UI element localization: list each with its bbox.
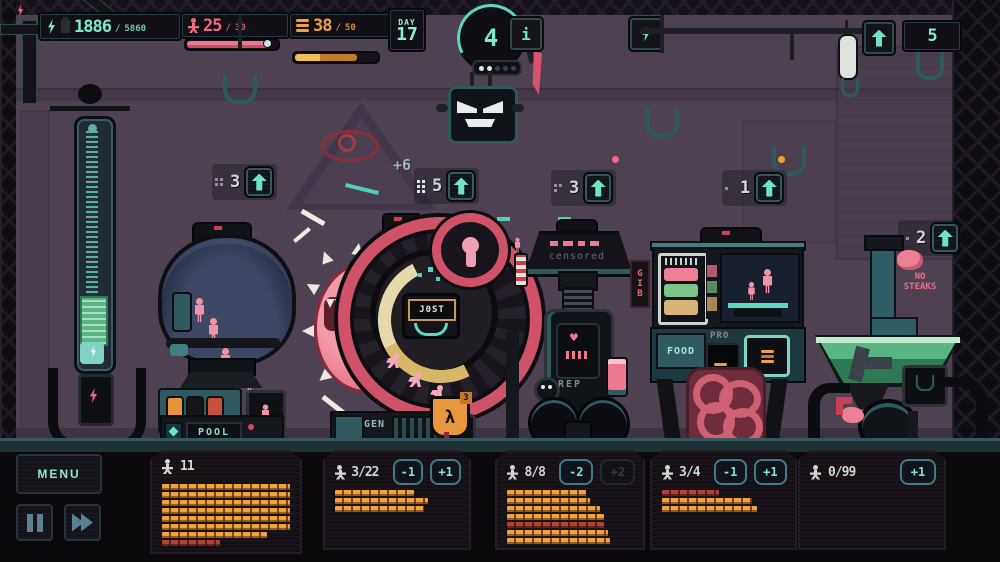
burger-icon xyxy=(761,350,774,363)
food-column xyxy=(706,253,718,319)
fast-forward-button[interactable] xyxy=(62,502,103,543)
small-wheel-creature-body xyxy=(466,251,476,267)
robot-eye-left xyxy=(457,101,477,113)
food-lid-light xyxy=(722,231,730,235)
unit-progress-bars xyxy=(162,484,290,546)
unit-panel-grinder: 0/99 +1 xyxy=(798,450,946,550)
food-counter: 38 / 50 xyxy=(288,12,396,39)
robot-eye-right xyxy=(483,101,503,113)
rep-label: REP xyxy=(558,379,582,390)
gauge-base-box xyxy=(78,374,114,426)
food-meter xyxy=(292,51,380,64)
door-grill xyxy=(665,258,697,265)
claw-icon xyxy=(645,108,679,138)
hook-counter[interactable]: 5 xyxy=(902,20,962,52)
day-counter: DAY 17 xyxy=(388,8,426,52)
wheel-runner xyxy=(386,353,399,368)
heart-icon: ♥ xyxy=(570,331,578,346)
hook-icon xyxy=(916,52,944,80)
unit-panel-header: 11 xyxy=(162,459,292,474)
grinder-pipe-cap xyxy=(864,235,904,251)
food-layer-green xyxy=(664,284,698,297)
upgrade-button-rep[interactable] xyxy=(583,172,613,204)
separator: / xyxy=(115,24,120,34)
fast-forward-icon xyxy=(72,514,93,532)
remove-unit-button[interactable]: -2 xyxy=(559,459,594,485)
climbing-person xyxy=(514,238,521,252)
rep-dome-lights xyxy=(550,241,599,246)
pool-skirt xyxy=(180,372,262,388)
pool-red-light xyxy=(248,424,254,430)
upgrade-button-pool[interactable] xyxy=(244,166,274,198)
gen-cap-light xyxy=(394,217,402,221)
cost-pips xyxy=(554,184,565,192)
robot-grin xyxy=(465,119,495,127)
upgrade-cost: 1 xyxy=(740,178,750,198)
unit-panel-header: 3/4 -1 +1 xyxy=(662,459,787,485)
person-icon xyxy=(810,465,821,480)
remove-unit-button[interactable]: -1 xyxy=(393,459,424,485)
unit-count: 8/8 xyxy=(524,465,544,480)
pool-worker xyxy=(170,344,188,356)
food-person xyxy=(747,282,755,300)
robot-antenna xyxy=(470,72,474,86)
rep-meter xyxy=(566,351,590,359)
add-unit-button[interactable]: +1 xyxy=(430,459,461,485)
gen-machine[interactable]: J0ST GEN xyxy=(290,185,530,450)
unit-progress-bars xyxy=(335,490,459,512)
pro-label: PRO xyxy=(710,331,729,341)
crack xyxy=(345,183,379,195)
hook-counter-value: 5 xyxy=(927,26,936,46)
population-meter xyxy=(184,38,280,51)
unit-count: 11 xyxy=(180,459,194,474)
unit-count: 0/99 xyxy=(828,465,855,480)
pool-flask xyxy=(172,292,192,332)
gen-hub-nameplate: J0ST xyxy=(408,299,456,321)
censored-label: censored xyxy=(534,251,620,262)
rep-panel: ♥ xyxy=(556,323,600,379)
pool-machine[interactable]: POOL xyxy=(150,210,300,450)
rep-machine[interactable]: censored ♥ REP xyxy=(510,215,640,450)
food-machine[interactable]: FOOD PRO xyxy=(648,215,808,450)
basin-blade xyxy=(866,357,892,369)
dispenser-rod xyxy=(845,20,848,34)
add-unit-button-disabled[interactable]: +2 xyxy=(600,459,635,485)
population-meter-fill xyxy=(187,41,268,48)
energy-button[interactable] xyxy=(628,16,664,52)
person-icon xyxy=(162,459,173,474)
gauge-topper xyxy=(78,84,102,104)
robot-face xyxy=(448,86,518,144)
food-layer-pink xyxy=(664,268,698,281)
striped-pole xyxy=(514,253,528,287)
claw-rod xyxy=(790,34,794,60)
wheel-runner xyxy=(408,372,421,387)
food-door xyxy=(658,253,708,325)
claw-icon xyxy=(223,74,257,104)
energy-value: 1886 xyxy=(74,17,111,37)
up-arrow-icon xyxy=(872,30,887,47)
robot-bolt xyxy=(436,104,448,112)
lambda-count: 3 xyxy=(460,392,472,404)
person-icon xyxy=(335,465,344,480)
left-truss xyxy=(0,0,16,452)
remove-unit-button[interactable]: -1 xyxy=(714,459,747,485)
grinder-machine[interactable] xyxy=(808,235,978,450)
gauge-spring-top xyxy=(88,124,97,133)
person-icon xyxy=(188,18,199,33)
separator: / xyxy=(335,23,340,33)
battery-icon xyxy=(61,20,70,33)
gen-bonus-float: +6 xyxy=(393,156,411,174)
food-person xyxy=(762,269,773,293)
upgrade-badge-pool: 3 xyxy=(212,164,277,200)
food-max: 50 xyxy=(345,23,356,33)
unit-progress-bars xyxy=(507,490,633,544)
menu-button[interactable]: MENU xyxy=(14,452,104,496)
info-icon: i xyxy=(521,25,531,44)
gauge-leg-right xyxy=(110,368,146,448)
food-glass xyxy=(720,253,800,323)
food-value: 38 xyxy=(313,16,331,36)
burger-icon xyxy=(296,19,309,32)
robot-antenna xyxy=(488,72,492,86)
game-screen: OIOIO 1886 / 5860 25 / 30 38 / 50 DAY 17 xyxy=(0,0,1000,562)
dispenser-capsule xyxy=(838,34,858,80)
eye-pupil xyxy=(338,134,356,152)
upgrade-cost: 3 xyxy=(569,178,579,198)
crane-boom xyxy=(640,28,862,34)
upgrade-badge-rep: 3 xyxy=(551,170,616,206)
energy-gauge-machine[interactable] xyxy=(40,80,150,450)
unit-progress-bars xyxy=(662,490,785,512)
upgrade-button-food[interactable] xyxy=(754,172,784,204)
add-unit-button[interactable]: +1 xyxy=(754,459,787,485)
dispenser-hook xyxy=(841,78,859,97)
population-counter: 25 / 30 xyxy=(180,12,290,39)
claw-rod xyxy=(660,15,664,53)
person-icon xyxy=(662,465,672,480)
glitch-pixel xyxy=(418,273,422,277)
up-arrow-icon xyxy=(591,180,606,197)
pool-lid-light xyxy=(214,226,222,230)
upgrade-cost: 3 xyxy=(230,172,240,192)
crane-pips xyxy=(472,60,522,76)
glitch-pixel xyxy=(436,277,440,281)
glitch-pixel xyxy=(428,267,433,272)
up-arrow-icon xyxy=(762,180,777,197)
cost-pips xyxy=(725,187,736,190)
add-unit-button[interactable]: +1 xyxy=(900,459,936,485)
gauge-spring xyxy=(86,130,98,298)
info-button[interactable]: i xyxy=(508,16,544,52)
unit-count: 3/4 xyxy=(679,465,699,480)
population-value: 25 xyxy=(203,16,221,36)
energy-max: 5860 xyxy=(124,24,146,34)
unit-panel-header: 8/8 -2 +2 xyxy=(507,459,635,485)
pause-icon xyxy=(27,514,43,532)
rep-canister xyxy=(606,357,628,397)
gauge-charge-level xyxy=(80,296,108,346)
diamond-icon xyxy=(169,427,179,437)
unit-panel-rep: 8/8 -2 +2 xyxy=(495,450,645,550)
monster-spike xyxy=(304,279,320,295)
food-meter-fill xyxy=(295,54,357,61)
up-arrow-icon xyxy=(252,174,267,191)
upgrade-badge-food: 1 xyxy=(722,170,787,206)
gib-sign: GIB xyxy=(630,260,650,308)
eye-icon xyxy=(321,130,379,162)
energy-counter: 1886 / 5860 xyxy=(38,12,182,41)
wall-strut xyxy=(0,24,42,35)
pause-button[interactable] xyxy=(14,502,55,543)
crack xyxy=(300,209,325,226)
separator: / xyxy=(225,23,230,33)
lightning-icon xyxy=(46,19,57,34)
gauge-arms xyxy=(50,106,130,111)
unit-panel-header: 3/22 -1 +1 xyxy=(335,459,461,485)
pool-person xyxy=(194,298,205,322)
claw-rod xyxy=(238,15,242,49)
day-value: 17 xyxy=(396,27,418,43)
upgrade-capacity-button[interactable] xyxy=(862,20,896,56)
unit-panel-gen: 3/22 -1 +1 xyxy=(323,450,471,550)
food-layer-tan xyxy=(664,300,698,315)
gauge-bulb xyxy=(80,342,104,364)
food-label: FOOD xyxy=(656,333,706,369)
robot-bolt xyxy=(512,104,524,112)
unit-panel-header: 0/99 +1 xyxy=(810,459,936,485)
unit-panel-food: 3/4 -1 +1 xyxy=(650,450,797,550)
claw-icon xyxy=(916,375,935,392)
unit-count: 3/22 xyxy=(351,465,378,480)
falling-pink-dot xyxy=(612,156,619,163)
food-steps xyxy=(734,309,782,317)
cost-pips xyxy=(215,178,226,186)
population-meter-knob xyxy=(263,39,272,48)
person-icon xyxy=(507,465,517,480)
monster-spike xyxy=(318,249,333,264)
monster-spike xyxy=(302,325,314,337)
unit-panel-pool: 11 xyxy=(150,450,302,554)
food-platform xyxy=(728,303,788,308)
menu-button-label: MENU xyxy=(37,467,80,481)
crack xyxy=(293,227,311,243)
basin-rim xyxy=(816,337,960,343)
gen-label: GEN xyxy=(364,419,385,430)
